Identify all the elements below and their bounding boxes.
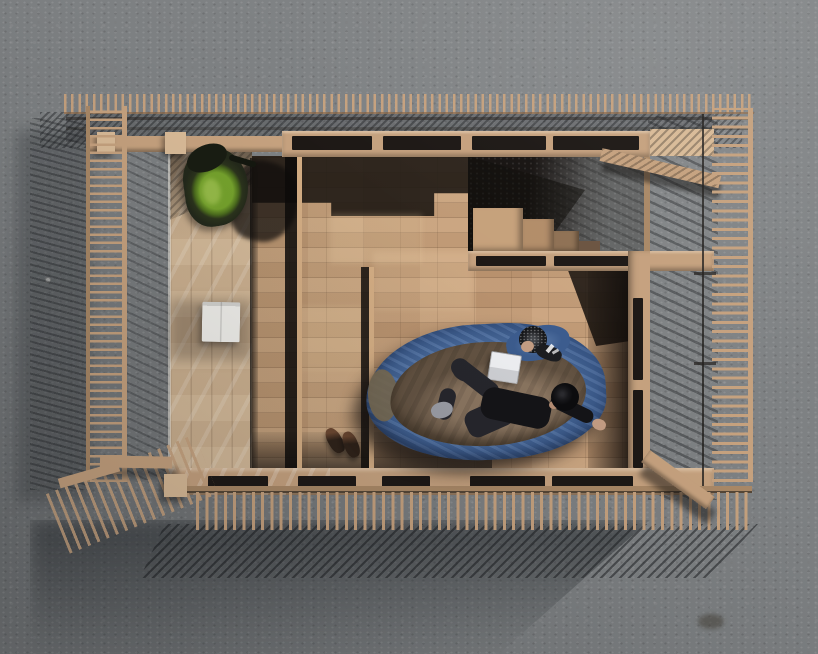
north-slat-fence [64, 94, 754, 114]
white-laptop [487, 351, 522, 384]
bench-post [164, 474, 187, 497]
west-slat-fence [86, 106, 127, 482]
wooden-step [554, 231, 579, 253]
pergola-post [165, 132, 186, 154]
partition-wall [285, 156, 302, 473]
wall-slot-opening [383, 136, 461, 150]
south-slat-shadows [140, 524, 758, 578]
sunlit-floor-patch [373, 252, 473, 310]
entry-canopy [650, 129, 714, 156]
steel-brace [694, 362, 716, 365]
wooden-step [523, 219, 554, 253]
scene-canvas [0, 0, 818, 654]
steel-brace [694, 272, 716, 275]
steel-rail [702, 114, 704, 492]
ground-stain [698, 614, 724, 629]
wall-slot-opening [633, 298, 643, 380]
north-wall [282, 131, 650, 157]
east-wall [628, 251, 650, 483]
wall-slot-opening [554, 256, 636, 266]
sunlit-floor-patch [298, 306, 364, 370]
west-inner-ground-shadows [126, 150, 172, 480]
backpack-highlight [201, 178, 222, 206]
inner-wall [468, 251, 714, 271]
wall-slot-opening [476, 256, 546, 266]
west-slat-shadows [30, 118, 88, 490]
open-white-book [202, 302, 241, 343]
east-slat-fence [712, 108, 753, 482]
wall-slot-opening [553, 136, 639, 150]
wooden-step [473, 208, 523, 253]
wall-slot-opening [633, 390, 643, 468]
wall-slot-opening [472, 136, 546, 150]
person-b-head [551, 383, 579, 411]
wall-slot-opening [292, 136, 372, 150]
